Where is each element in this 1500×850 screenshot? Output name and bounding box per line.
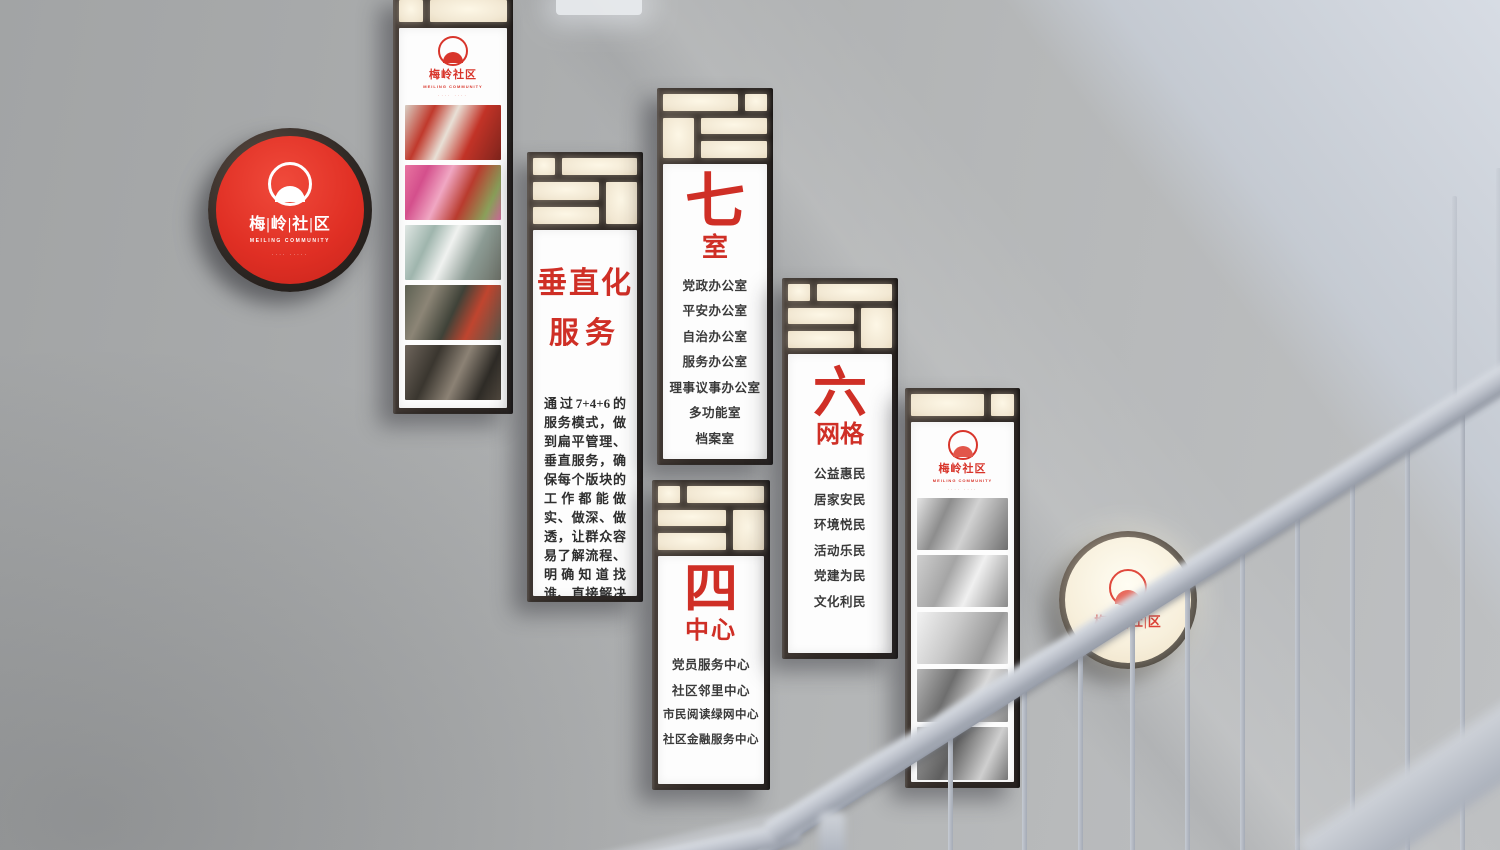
list-item: 党建为民 bbox=[788, 570, 892, 583]
list-item: 社区金融服务中心 bbox=[658, 735, 764, 747]
railing-baluster bbox=[1295, 517, 1300, 850]
four-centers-panel: 四 中心 党员服务中心 社区邻里中心 市民阅读绿网中心 社区金融服务中心 bbox=[652, 480, 770, 790]
list-item: 公益惠民 bbox=[788, 468, 892, 481]
list-item: 市民阅读绿网中心 bbox=[658, 710, 764, 722]
list-item: 党员服务中心 bbox=[658, 659, 764, 672]
lattice-cell bbox=[658, 533, 726, 550]
lattice-header bbox=[399, 0, 507, 22]
lattice-header bbox=[658, 486, 764, 550]
railing-baluster bbox=[1240, 552, 1245, 850]
photo-fan-dance bbox=[405, 165, 501, 220]
photo-home-visit bbox=[405, 285, 501, 340]
panel-face: 六 网格 公益惠民 居家安民 环境悦民 活动乐民 党建为民 文化利民 bbox=[788, 354, 892, 653]
list-item: 党政办公室 bbox=[663, 280, 767, 293]
meiling-community-logo-icon bbox=[948, 430, 978, 460]
lattice-cell bbox=[658, 486, 680, 503]
photo-volunteer-help bbox=[405, 345, 501, 400]
lattice-cell bbox=[701, 141, 767, 158]
community-name: 梅|岭|社|区 bbox=[249, 215, 331, 235]
list-item: 档案室 bbox=[663, 433, 767, 446]
panel-face: 四 中心 党员服务中心 社区邻里中心 市民阅读绿网中心 社区金融服务中心 bbox=[658, 556, 764, 784]
photo-community-event bbox=[405, 105, 501, 160]
lattice-cell bbox=[687, 486, 764, 503]
panel-numeral: 七 bbox=[663, 172, 767, 232]
list-item: 环境悦民 bbox=[788, 519, 892, 532]
logo-name-en: MEILING COMMUNITY bbox=[911, 478, 1014, 483]
panel-category: 网格 bbox=[788, 422, 892, 448]
fan-mountain-icon bbox=[275, 186, 305, 202]
upper-flight-baluster bbox=[1452, 196, 1457, 419]
meiling-community-logo-icon bbox=[268, 162, 312, 206]
lattice-cell bbox=[658, 510, 726, 527]
lattice-cell bbox=[861, 308, 892, 348]
near-railing-post bbox=[819, 812, 845, 850]
photo-strip-panel-left: 梅岭社区 MEILING COMMUNITY ···· ···· bbox=[393, 0, 513, 414]
list-item: 多功能室 bbox=[663, 407, 767, 420]
panel-numeral: 六 bbox=[788, 366, 892, 420]
ceiling-light bbox=[556, 0, 642, 15]
lattice-cell bbox=[663, 94, 738, 111]
photo-door-visit-bw bbox=[917, 555, 1008, 607]
logo-name: 梅岭社区 bbox=[911, 463, 1014, 477]
meiling-community-logo-icon bbox=[438, 36, 468, 66]
photo-neighborhood-talk-bw bbox=[917, 498, 1008, 550]
panel-face: 七 室 党政办公室 平安办公室 自治办公室 服务办公室 理事议事办公室 多功能室… bbox=[663, 164, 767, 459]
lattice-cell bbox=[533, 182, 599, 199]
lattice-cell bbox=[817, 284, 892, 301]
logo-tagline: ···· ···· bbox=[911, 487, 1014, 492]
list-item: 文化利民 bbox=[788, 596, 892, 609]
lattice-cell bbox=[788, 284, 810, 301]
round-community-sign-left: 梅|岭|社|区 MEILING COMMUNITY ···· ····· bbox=[208, 128, 372, 292]
community-name-en: MEILING COMMUNITY bbox=[250, 238, 330, 244]
panel-title-line1: 垂直化 bbox=[533, 258, 637, 302]
upper-flight-baluster bbox=[1496, 168, 1500, 391]
lattice-header bbox=[663, 94, 767, 158]
lattice-cell bbox=[430, 0, 507, 22]
panel-category: 室 bbox=[663, 234, 767, 263]
list-item: 居家安民 bbox=[788, 494, 892, 507]
panel-title-line2: 服务 bbox=[533, 308, 637, 352]
room-list: 党政办公室 平安办公室 自治办公室 服务办公室 理事议事办公室 多功能室 档案室 bbox=[663, 280, 767, 446]
logo-tagline: ···· ···· bbox=[399, 93, 507, 98]
railing-baluster bbox=[1078, 654, 1083, 850]
lattice-cell bbox=[991, 394, 1014, 416]
railing-baluster bbox=[948, 736, 953, 850]
railing-baluster bbox=[1185, 587, 1190, 850]
logo-name: 梅岭社区 bbox=[399, 69, 507, 83]
community-tagline: ···· ····· bbox=[272, 253, 308, 258]
seven-rooms-panel: 七 室 党政办公室 平安办公室 自治办公室 服务办公室 理事议事办公室 多功能室… bbox=[657, 88, 773, 465]
list-item: 平安办公室 bbox=[663, 305, 767, 318]
lattice-header bbox=[533, 158, 637, 224]
railing-baluster bbox=[1022, 690, 1027, 850]
center-list: 党员服务中心 社区邻里中心 市民阅读绿网中心 社区金融服务中心 bbox=[658, 659, 764, 746]
lattice-cell bbox=[701, 118, 767, 135]
lattice-cell bbox=[533, 207, 599, 224]
lattice-cell bbox=[562, 158, 637, 175]
lattice-cell bbox=[788, 308, 854, 325]
list-item: 自治办公室 bbox=[663, 331, 767, 344]
lattice-cell bbox=[606, 182, 637, 224]
lattice-cell bbox=[533, 158, 555, 175]
six-grids-panel: 六 网格 公益惠民 居家安民 环境悦民 活动乐民 党建为民 文化利民 bbox=[782, 278, 898, 659]
railing-baluster bbox=[1350, 482, 1355, 850]
lattice-header bbox=[911, 394, 1014, 416]
stairwell-culture-wall-photo: 梅|岭|社|区 MEILING COMMUNITY ···· ····· 梅岭社… bbox=[0, 0, 1500, 850]
lattice-cell bbox=[399, 0, 423, 22]
vertical-service-panel: 垂直化 服务 通过7+4+6的服务模式，做到扁平管理、垂直服务，确保每个版块的工… bbox=[527, 152, 643, 602]
list-item: 理事议事办公室 bbox=[663, 382, 767, 395]
panel-numeral: 四 bbox=[658, 562, 764, 616]
list-item: 社区邻里中心 bbox=[658, 685, 764, 698]
panel-face: 垂直化 服务 通过7+4+6的服务模式，做到扁平管理、垂直服务，确保每个版块的工… bbox=[533, 230, 637, 596]
lattice-cell bbox=[911, 394, 984, 416]
panel-face: 梅岭社区 MEILING COMMUNITY ···· ···· bbox=[399, 28, 507, 408]
logo-name-en: MEILING COMMUNITY bbox=[399, 84, 507, 89]
sign-face-red: 梅|岭|社|区 MEILING COMMUNITY ···· ····· bbox=[216, 136, 364, 284]
fan-mountain-icon bbox=[953, 446, 973, 457]
lattice-cell bbox=[663, 118, 694, 158]
panel-body-text: 通过7+4+6的服务模式，做到扁平管理、垂直服务，确保每个版块的工作都能做实、做… bbox=[533, 394, 637, 596]
list-item: 服务办公室 bbox=[663, 356, 767, 369]
lattice-cell bbox=[788, 331, 854, 348]
lattice-cell bbox=[733, 510, 764, 550]
photo-health-check bbox=[405, 225, 501, 280]
railing-baluster bbox=[1130, 622, 1135, 850]
list-item: 活动乐民 bbox=[788, 545, 892, 558]
grid-list: 公益惠民 居家安民 环境悦民 活动乐民 党建为民 文化利民 bbox=[788, 468, 892, 608]
lattice-cell bbox=[745, 94, 767, 111]
photo-calligraphy-bw bbox=[917, 612, 1008, 664]
panel-category: 中心 bbox=[658, 618, 764, 644]
foreground-handrail-corner bbox=[1298, 679, 1500, 850]
lattice-header bbox=[788, 284, 892, 348]
fan-mountain-icon bbox=[443, 52, 463, 63]
